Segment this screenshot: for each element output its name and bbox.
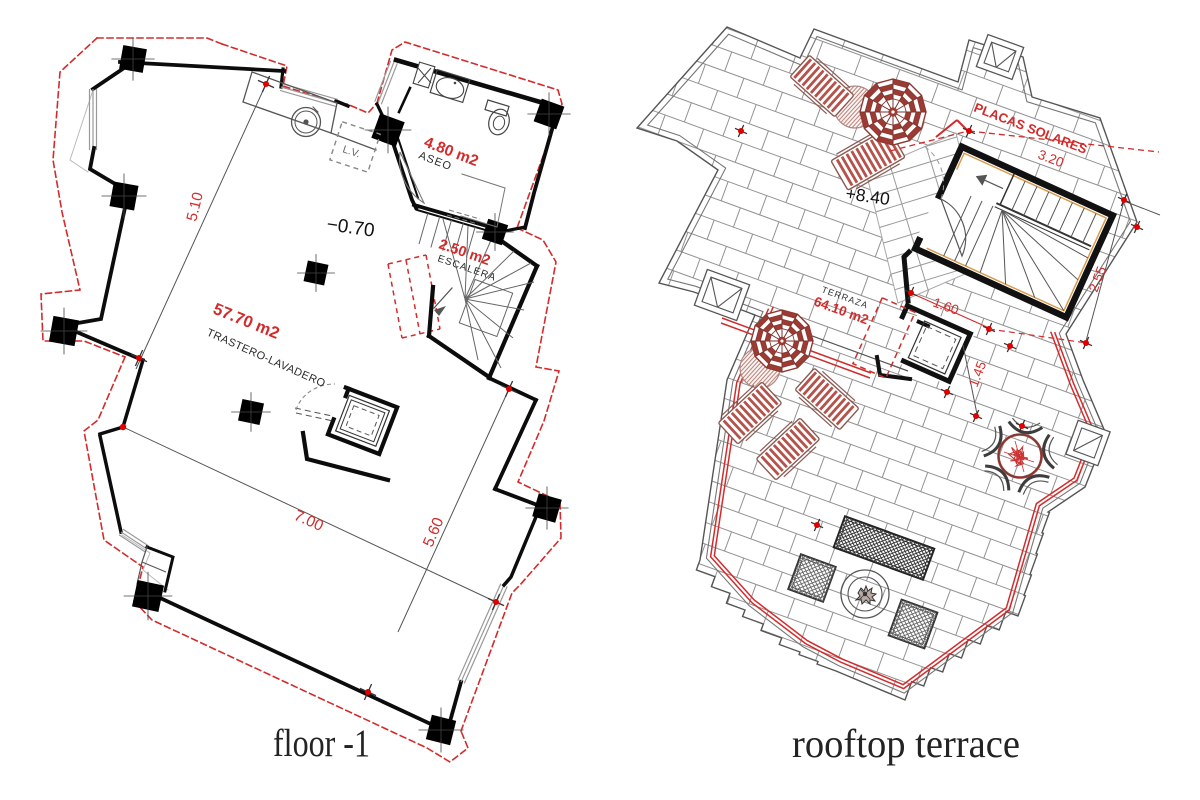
svg-text:floor -1: floor -1: [273, 722, 370, 765]
svg-text:rooftop terrace: rooftop terrace: [792, 721, 1020, 766]
